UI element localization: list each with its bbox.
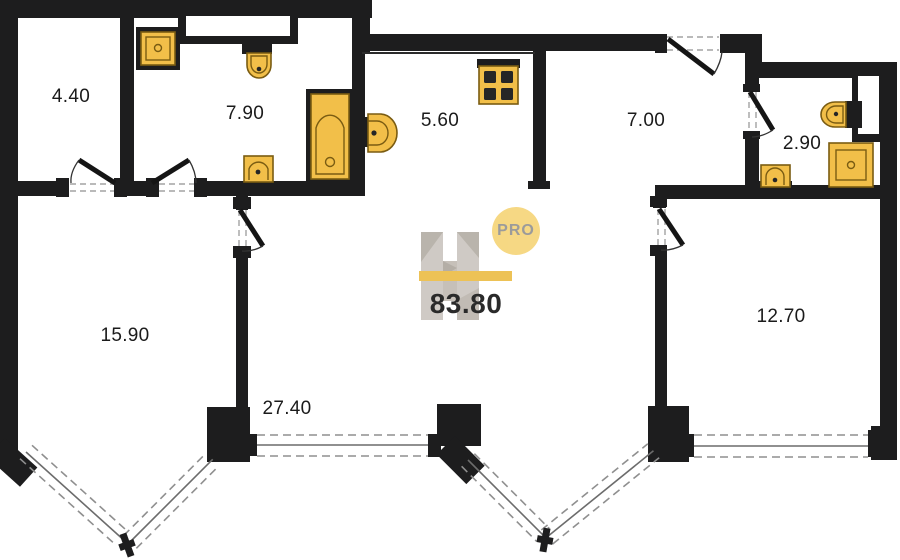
room-area-label: 12.70 — [756, 306, 805, 328]
floor-plan: 4.40 7.90 5.60 7.00 2.90 15.90 27.40 12.… — [0, 0, 900, 560]
wash-basin-icon — [244, 156, 273, 182]
wall-toilet-icon — [242, 36, 272, 78]
door-room-15-90 — [239, 210, 263, 251]
room-area-label: 15.90 — [100, 325, 149, 347]
door-room-12-70 — [658, 209, 683, 250]
bay-window-left — [20, 445, 219, 559]
window-horizontal-right — [694, 435, 868, 457]
logo-pro-text: PRO — [497, 222, 535, 240]
floor-plan-drawing — [0, 0, 900, 560]
room-area-label: 7.90 — [226, 103, 264, 125]
room-area-label: 5.60 — [421, 110, 459, 132]
door-room-4-40 — [70, 160, 115, 191]
wall-toilet-icon — [821, 101, 862, 128]
door-entry — [667, 37, 722, 74]
room-area-label: 27.40 — [262, 398, 311, 420]
wash-basin-icon — [358, 114, 397, 152]
room-area-label: 7.00 — [627, 110, 665, 132]
cooktop-icon — [477, 59, 520, 104]
shower-tray-icon — [136, 27, 180, 70]
bathtub-icon — [306, 89, 354, 184]
wash-basin-icon — [759, 165, 792, 189]
room-area-label: 4.40 — [52, 86, 90, 108]
bay-window-center — [462, 444, 659, 553]
wall-niche — [178, 14, 298, 44]
window-horizontal-left — [257, 435, 428, 456]
door-room-2-90 — [749, 92, 773, 137]
logo-yellow-bar — [419, 271, 512, 281]
total-area-label: 83.80 — [430, 288, 503, 320]
shower-tray-icon — [829, 143, 873, 187]
room-area-label: 2.90 — [783, 133, 821, 155]
exterior-walls — [0, 0, 897, 487]
